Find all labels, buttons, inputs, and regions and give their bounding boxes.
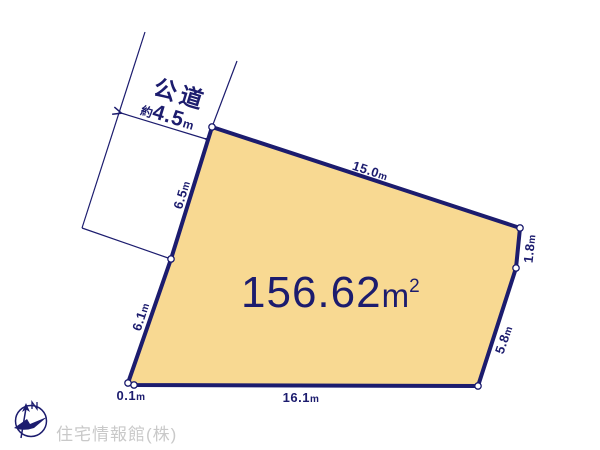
vertex-marker — [513, 265, 519, 271]
road-right-line — [212, 61, 237, 127]
vertex-marker — [125, 380, 131, 386]
compass-wing-shape — [14, 417, 47, 430]
diagram-canvas: 公道 約4.5m 15.0m 1.8m 5.8m 16.1m 0.1m 6.1m… — [0, 0, 600, 450]
edge-label-right-upper: 1.8m — [521, 233, 539, 263]
land-plot-diagram: 公道 約4.5m 15.0m 1.8m 5.8m 16.1m 0.1m 6.1m… — [0, 0, 600, 450]
vertex-marker — [209, 124, 215, 130]
vertex-marker — [168, 256, 174, 262]
vertex-marker — [475, 383, 481, 389]
road-end-line — [82, 228, 171, 259]
land-plot-polygon — [128, 127, 520, 386]
edge-label-bottom-left: 0.1m — [117, 388, 146, 403]
area-value: 156.62 — [241, 268, 382, 317]
company-watermark: 住宅情報館(株) — [56, 425, 177, 444]
road-left-line — [82, 32, 145, 228]
edge-label-bottom: 16.1m — [283, 390, 320, 405]
compass-north-icon — [14, 402, 47, 438]
vertex-marker — [517, 225, 523, 231]
area-exponent: 2 — [409, 276, 420, 297]
area-unit: m — [382, 277, 410, 314]
